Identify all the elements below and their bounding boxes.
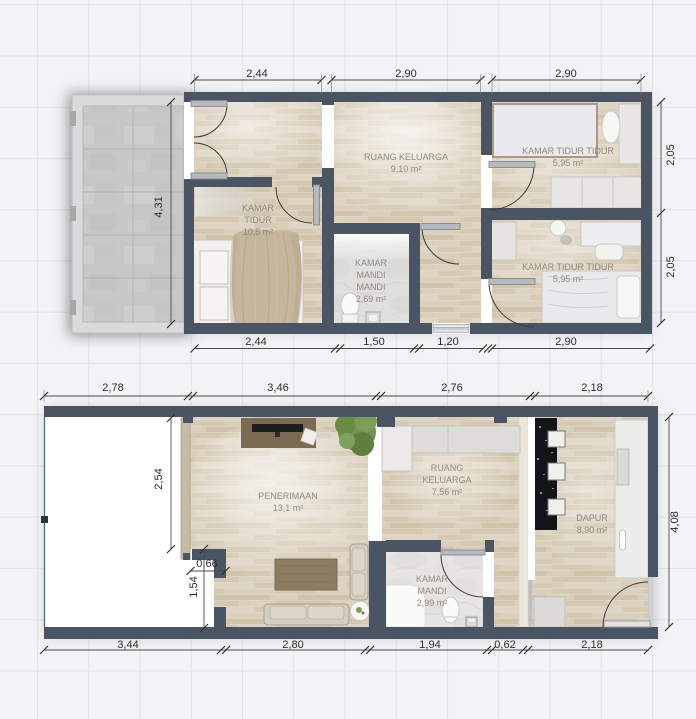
svg-text:4,31: 4,31 (153, 196, 165, 217)
svg-text:2,18: 2,18 (581, 639, 602, 651)
svg-text:5,95 m²: 5,95 m² (553, 274, 584, 284)
svg-text:RUANG: RUANG (431, 463, 464, 473)
svg-text:KELUARGA: KELUARGA (422, 475, 471, 485)
svg-text:13,1 m²: 13,1 m² (273, 503, 304, 513)
svg-text:2,44: 2,44 (246, 68, 267, 80)
svg-text:2,80: 2,80 (282, 639, 303, 651)
svg-text:3,44: 3,44 (117, 639, 138, 651)
svg-text:4,08: 4,08 (669, 511, 681, 532)
svg-text:2,18: 2,18 (581, 382, 602, 394)
svg-text:5,95 m²: 5,95 m² (553, 158, 584, 168)
svg-text:2,05: 2,05 (665, 144, 677, 165)
svg-text:1,20: 1,20 (437, 336, 458, 348)
svg-text:1,54: 1,54 (188, 576, 200, 597)
svg-text:1,50: 1,50 (363, 336, 384, 348)
svg-text:3,46: 3,46 (267, 382, 288, 394)
svg-text:MANDI: MANDI (357, 282, 386, 292)
svg-text:2,90: 2,90 (555, 336, 576, 348)
svg-text:1,94: 1,94 (419, 639, 440, 651)
svg-text:2,90: 2,90 (395, 68, 416, 80)
svg-text:2,69 m²: 2,69 m² (356, 294, 387, 304)
svg-text:MANDI: MANDI (418, 586, 447, 596)
svg-text:7,56 m²: 7,56 m² (432, 487, 463, 497)
svg-text:RUANG KELUARGA: RUANG KELUARGA (364, 152, 448, 162)
svg-text:DAPUR: DAPUR (576, 513, 608, 523)
svg-text:2,90: 2,90 (555, 68, 576, 80)
svg-text:2,44: 2,44 (245, 336, 266, 348)
svg-text:10,5 m²: 10,5 m² (243, 227, 274, 237)
svg-text:2,99 m²: 2,99 m² (417, 598, 448, 608)
svg-text:2,54: 2,54 (153, 468, 165, 489)
svg-text:0,66: 0,66 (196, 558, 217, 570)
svg-text:2,76: 2,76 (441, 382, 462, 394)
svg-text:KAMAR: KAMAR (416, 574, 449, 584)
svg-text:MANDI: MANDI (357, 270, 386, 280)
svg-text:KAMAR: KAMAR (242, 203, 275, 213)
svg-text:KAMAR TIDUR TIDUR: KAMAR TIDUR TIDUR (522, 262, 614, 272)
svg-text:KAMAR TIDUR TIDUR: KAMAR TIDUR TIDUR (522, 146, 614, 156)
svg-text:2,78: 2,78 (102, 382, 123, 394)
svg-text:2,05: 2,05 (665, 256, 677, 277)
svg-text:9,10 m²: 9,10 m² (391, 164, 422, 174)
svg-text:TIDUR: TIDUR (244, 215, 272, 225)
svg-text:PENERIMAAN: PENERIMAAN (258, 491, 318, 501)
svg-text:KAMAR: KAMAR (355, 258, 388, 268)
svg-text:0,62: 0,62 (494, 639, 515, 651)
svg-text:8,90 m²: 8,90 m² (577, 525, 608, 535)
